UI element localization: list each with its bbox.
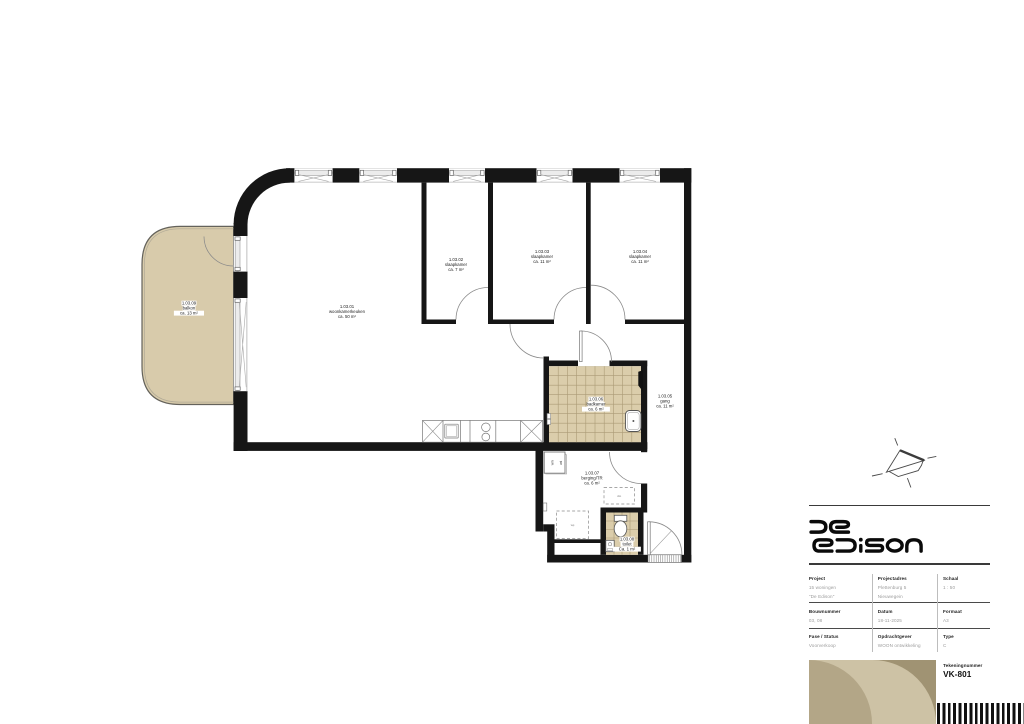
svg-text:dro: dro: [617, 494, 621, 498]
svg-text:ca. 11 m²: ca. 11 m²: [656, 404, 674, 409]
svg-text:ca. 11 m²: ca. 11 m²: [631, 259, 649, 264]
svg-text:wm: wm: [551, 460, 555, 465]
svg-text:ca. 6 m²: ca. 6 m²: [584, 481, 600, 486]
svg-text:wp: wp: [571, 523, 575, 527]
svg-text:ca. 13 m²: ca. 13 m²: [180, 311, 198, 316]
svg-text:ca. 11 m²: ca. 11 m²: [533, 259, 551, 264]
svg-text:ca. 50 m²: ca. 50 m²: [338, 314, 356, 319]
svg-text:Ca. 1 m²: Ca. 1 m²: [619, 547, 636, 552]
svg-text:ca. 6 m²: ca. 6 m²: [588, 407, 604, 412]
svg-text:wd: wd: [559, 461, 563, 465]
svg-text:ca. 7 m²: ca. 7 m²: [448, 267, 464, 272]
